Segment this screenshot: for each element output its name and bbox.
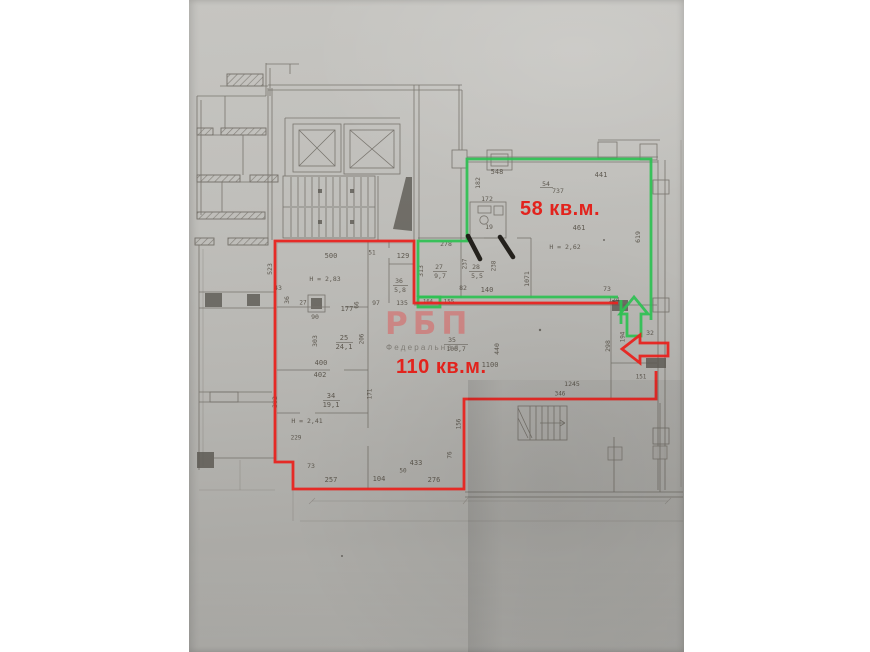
green-area-label: 58 кв.м. xyxy=(520,198,600,221)
red-area-label: 110 кв.м. xyxy=(396,356,487,379)
floor-plan-photo: 5484415473718217219461H = 2,626191071140… xyxy=(0,0,870,652)
rbp-watermark: РБП xyxy=(385,306,472,342)
green-area-outline xyxy=(418,159,651,324)
watermark-subtext: Федеральная xyxy=(386,343,461,352)
door-marker-strokes xyxy=(468,236,513,259)
